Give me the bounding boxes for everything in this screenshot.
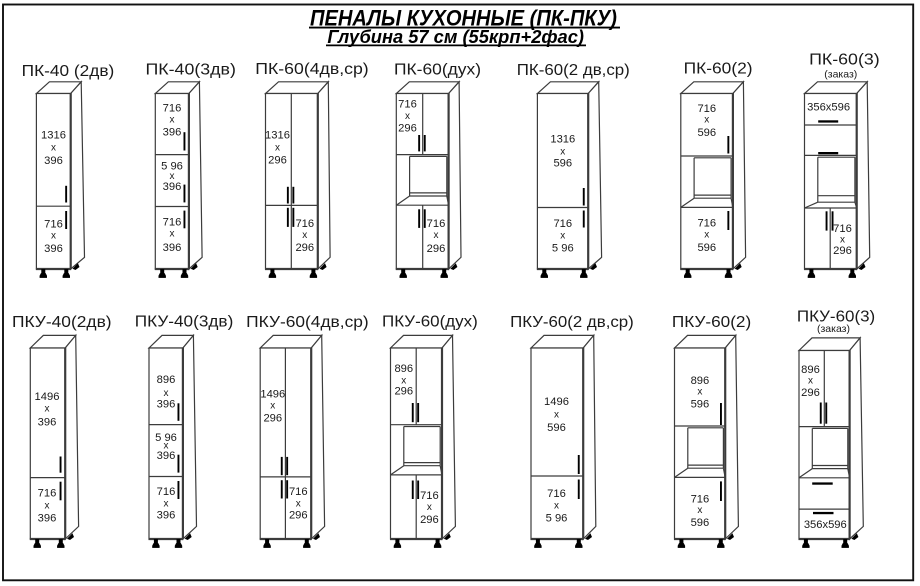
svg-text:х: х — [275, 143, 280, 154]
svg-text:716: 716 — [157, 486, 176, 498]
svg-text:1316: 1316 — [550, 134, 575, 146]
svg-text:1496: 1496 — [544, 396, 569, 408]
svg-text:396: 396 — [157, 510, 176, 522]
svg-text:х: х — [704, 230, 709, 241]
svg-text:1496: 1496 — [260, 389, 285, 401]
svg-text:716: 716 — [163, 217, 182, 229]
svg-text:296: 296 — [263, 413, 282, 425]
svg-text:296: 296 — [833, 245, 852, 257]
svg-text:296: 296 — [295, 242, 314, 254]
svg-text:896: 896 — [691, 375, 710, 387]
svg-text:х: х — [405, 111, 410, 122]
svg-text:396: 396 — [44, 155, 63, 167]
svg-text:716: 716 — [420, 490, 439, 502]
svg-text:716: 716 — [398, 99, 417, 111]
svg-text:296: 296 — [420, 514, 439, 526]
svg-text:716: 716 — [44, 219, 63, 231]
svg-text:596: 596 — [547, 422, 566, 434]
svg-text:896: 896 — [801, 364, 820, 376]
svg-text:716: 716 — [691, 494, 710, 506]
svg-text:716: 716 — [427, 218, 446, 230]
svg-text:х: х — [302, 230, 307, 241]
svg-text:ПК-60(4дв,ср): ПК-60(4дв,ср) — [255, 61, 368, 78]
svg-text:ПК-40 (2дв): ПК-40 (2дв) — [22, 63, 115, 80]
svg-text:596: 596 — [697, 242, 716, 254]
svg-text:716: 716 — [38, 488, 57, 500]
svg-text:396: 396 — [38, 417, 57, 429]
svg-text:х: х — [170, 229, 175, 240]
svg-text:296: 296 — [801, 387, 820, 399]
svg-text:х: х — [697, 387, 702, 398]
svg-text:ПКУ-60(2 дв,ср): ПКУ-60(2 дв,ср) — [510, 314, 634, 331]
svg-text:396: 396 — [157, 450, 176, 462]
svg-text:х: х — [840, 235, 845, 246]
svg-text:396: 396 — [163, 127, 182, 139]
svg-text:356х596: 356х596 — [807, 102, 850, 114]
svg-text:ПК-60(3): ПК-60(3) — [809, 51, 880, 68]
svg-text:(заказ): (заказ) — [817, 323, 850, 335]
svg-text:716: 716 — [553, 218, 572, 230]
svg-text:716: 716 — [295, 218, 314, 230]
svg-text:х: х — [51, 231, 56, 242]
svg-text:716: 716 — [697, 103, 716, 115]
svg-text:х: х — [560, 231, 565, 242]
svg-text:ПКУ-60(4дв,ср): ПКУ-60(4дв,ср) — [246, 314, 369, 331]
svg-text:296: 296 — [427, 243, 446, 255]
svg-text:ПК-40(3дв): ПК-40(3дв) — [146, 62, 236, 79]
svg-text:596: 596 — [697, 127, 716, 139]
svg-text:ПКУ-40(2дв): ПКУ-40(2дв) — [12, 314, 112, 331]
svg-text:х: х — [170, 114, 175, 125]
svg-text:5 96: 5 96 — [546, 513, 568, 525]
svg-text:716: 716 — [697, 217, 716, 229]
svg-text:396: 396 — [44, 243, 63, 255]
svg-text:х: х — [270, 401, 275, 412]
svg-text:ПК-60(дух): ПК-60(дух) — [394, 62, 481, 79]
svg-text:ПКУ-60(дух): ПКУ-60(дух) — [382, 314, 478, 331]
svg-text:716: 716 — [833, 223, 852, 235]
svg-text:716: 716 — [163, 103, 182, 115]
svg-text:896: 896 — [157, 374, 176, 386]
svg-text:396: 396 — [157, 398, 176, 410]
svg-text:296: 296 — [394, 386, 413, 398]
svg-text:х: х — [808, 376, 813, 387]
svg-text:ПК-60(2 дв,ср): ПК-60(2 дв,ср) — [517, 62, 630, 79]
svg-text:5 96: 5 96 — [552, 243, 574, 255]
svg-text:х: х — [51, 143, 56, 154]
svg-text:596: 596 — [691, 517, 710, 529]
svg-text:х: х — [45, 403, 50, 414]
svg-text:х: х — [554, 501, 559, 512]
svg-text:(заказ): (заказ) — [824, 69, 857, 81]
svg-text:х: х — [704, 115, 709, 126]
svg-text:396: 396 — [163, 181, 182, 193]
svg-text:296: 296 — [289, 510, 308, 522]
svg-text:716: 716 — [289, 486, 308, 498]
svg-text:356х596: 356х596 — [804, 519, 847, 531]
svg-text:Глубина 57 см (55крп+2фас): Глубина 57 см (55крп+2фас) — [327, 26, 584, 47]
svg-text:596: 596 — [553, 157, 572, 169]
svg-text:ПКУ-60(2): ПКУ-60(2) — [672, 314, 751, 331]
svg-text:х: х — [434, 230, 439, 241]
svg-text:1496: 1496 — [35, 391, 60, 403]
svg-text:х: х — [427, 502, 432, 513]
svg-text:296: 296 — [268, 155, 287, 167]
svg-text:716: 716 — [547, 488, 566, 500]
svg-text:х: х — [296, 499, 301, 510]
svg-text:х: х — [164, 498, 169, 509]
svg-text:896: 896 — [394, 363, 413, 375]
svg-text:х: х — [697, 505, 702, 516]
svg-text:ПК-60(2): ПК-60(2) — [684, 60, 753, 77]
svg-text:х: х — [45, 500, 50, 511]
svg-text:х: х — [560, 146, 565, 157]
svg-text:1316: 1316 — [41, 130, 66, 142]
svg-text:х: х — [554, 410, 559, 421]
svg-text:1316: 1316 — [265, 130, 290, 142]
svg-text:296: 296 — [398, 122, 417, 134]
svg-text:ПКУ-40(3дв): ПКУ-40(3дв) — [135, 314, 233, 331]
svg-text:396: 396 — [38, 512, 57, 524]
svg-text:596: 596 — [691, 399, 710, 411]
svg-text:396: 396 — [163, 242, 182, 254]
